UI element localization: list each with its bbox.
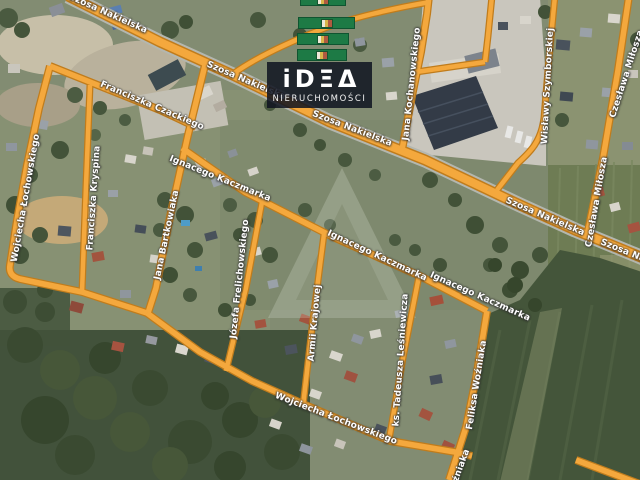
marker-photo-icon (322, 20, 332, 27)
agency-logo-brand: iDΞΔ (283, 67, 361, 91)
agency-logo-watermark: iDΞΔ NIERUCHOMOŚCI (267, 62, 372, 108)
listing-marker[interactable] (297, 49, 347, 61)
listing-marker[interactable] (297, 33, 349, 45)
listing-marker[interactable] (298, 17, 355, 29)
listing-marker[interactable] (300, 0, 346, 6)
agency-logo-subtitle: NIERUCHOMOŚCI (272, 94, 366, 104)
marker-photo-icon (318, 0, 328, 4)
marker-photo-icon (318, 36, 328, 43)
satellite-map[interactable]: Szosa NakielskaSzosa NakielskaSzosa Naki… (0, 0, 640, 480)
marker-photo-icon (317, 52, 327, 59)
